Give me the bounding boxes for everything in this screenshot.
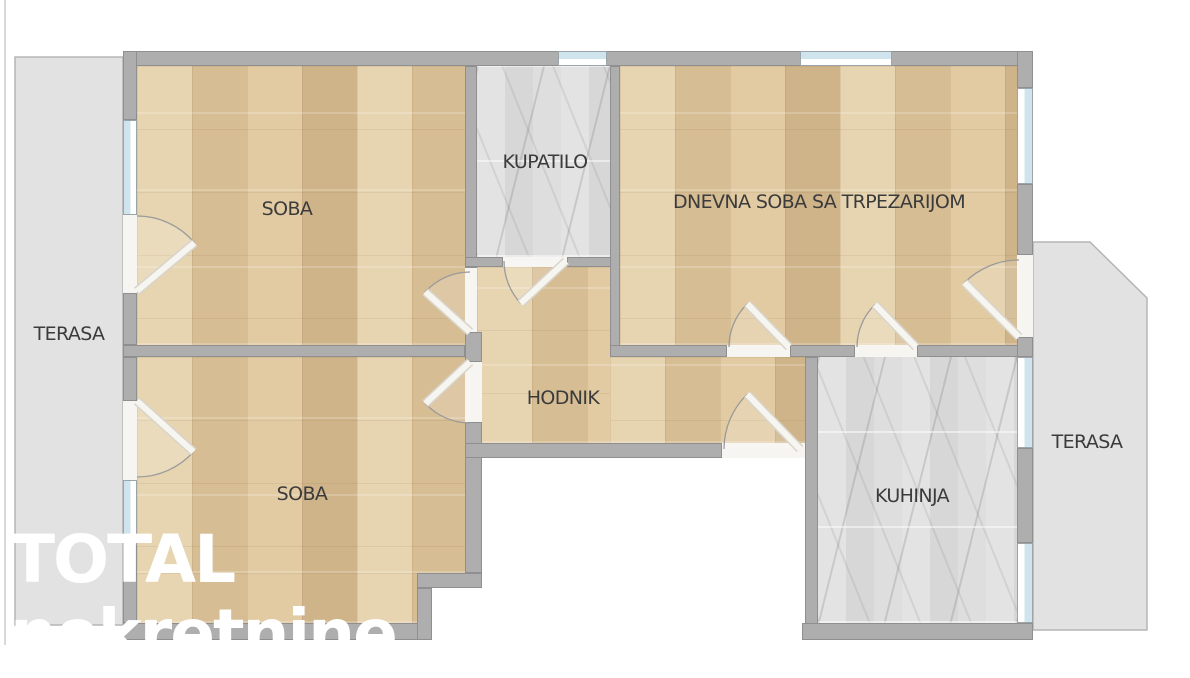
- terrace-label-right: TERASA: [1052, 431, 1123, 453]
- door-soba2-hodnik: [425, 362, 470, 423]
- door-kupatilo: [504, 261, 566, 303]
- room-label-soba-1: SOBA: [262, 198, 313, 220]
- watermark-line1: TOTAL: [10, 523, 396, 597]
- room-label-kuhinja: KUHINJA: [875, 485, 949, 507]
- room-label-dnevna-soba: DNEVNA SOBA SA TRPEZARIJOM: [673, 191, 965, 213]
- door-dnevna-hodnik: [729, 304, 789, 347]
- door-soba1-terasa: [137, 216, 194, 291]
- door-dnevna-kuhinja: [857, 305, 916, 347]
- watermark-line2: nekretnine: [10, 597, 396, 671]
- door-dnevna-terasa: [965, 260, 1019, 337]
- watermark: TOTAL nekretnine: [10, 523, 396, 671]
- room-label-kupatilo: KUPATILO: [503, 151, 588, 173]
- room-label-soba-2: SOBA: [277, 483, 328, 505]
- door-ulaz: [724, 394, 800, 449]
- terrace-label-left: TERASA: [34, 323, 105, 345]
- room-label-hodnik: HODNIK: [527, 387, 600, 409]
- floor-plan: TOTAL nekretnine SOBAKUPATILODNEVNA SOBA…: [0, 0, 1190, 678]
- door-soba1-hodnik: [425, 272, 470, 332]
- door-soba2-terasa: [137, 401, 193, 477]
